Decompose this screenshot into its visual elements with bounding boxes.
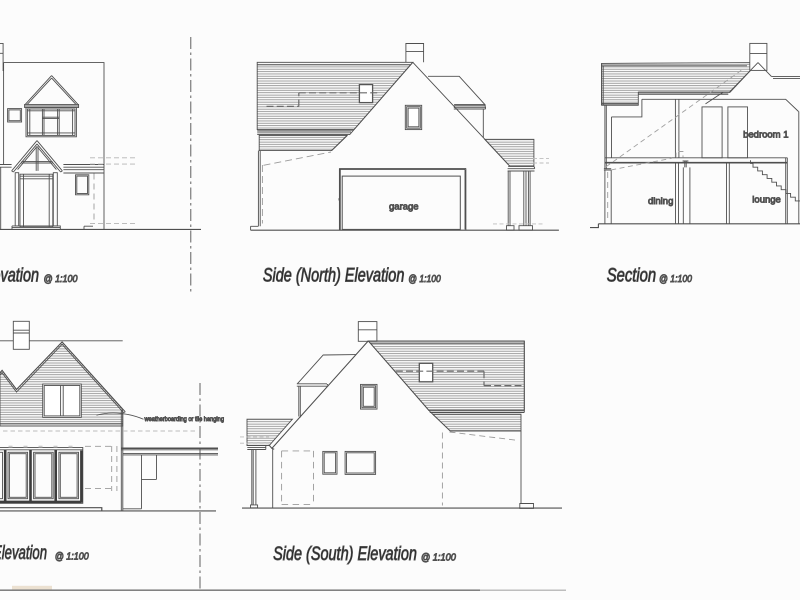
- svg-text:Side (South) Elevation: Side (South) Elevation: [273, 543, 417, 565]
- svg-text:@ 1:100: @ 1:100: [421, 553, 456, 564]
- svg-text:@ 1:100: @ 1:100: [55, 552, 89, 563]
- svg-text:weatherboarding or tile hangin: weatherboarding or tile hanging: [144, 416, 225, 423]
- svg-text:Section: Section: [607, 264, 657, 286]
- svg-text:@ 1:100: @ 1:100: [44, 274, 78, 285]
- svg-text:Side (North) Elevation: Side (North) Elevation: [263, 265, 405, 287]
- svg-text:@ 1:100: @ 1:100: [408, 274, 441, 285]
- svg-text:dining: dining: [648, 196, 673, 207]
- svg-text:bedroom 1: bedroom 1: [743, 129, 788, 140]
- svg-text:evation: evation: [0, 265, 39, 287]
- svg-text:@ 1:100: @ 1:100: [659, 274, 692, 285]
- svg-text:lounge: lounge: [752, 194, 781, 205]
- svg-text:Elevation: Elevation: [0, 542, 47, 564]
- svg-text:garage: garage: [389, 201, 419, 212]
